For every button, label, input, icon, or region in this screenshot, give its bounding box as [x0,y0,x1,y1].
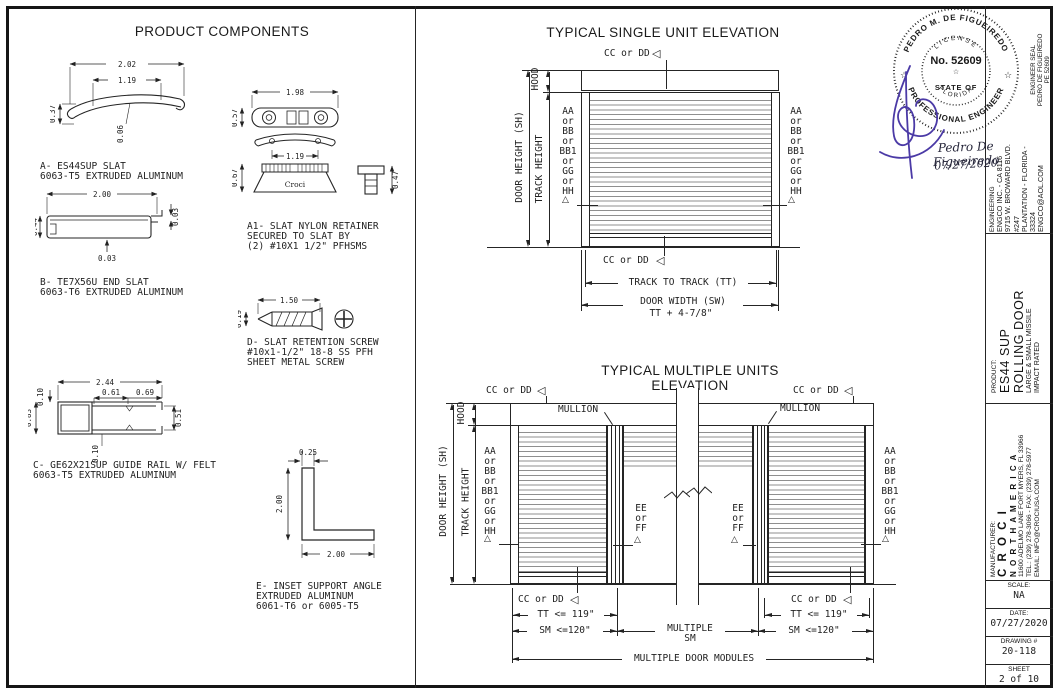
arrow-right-icon [862,613,869,617]
dim-line [529,72,530,245]
arrow-left-icon [765,613,772,617]
line [986,403,1053,404]
arrow-up-icon [450,403,454,410]
dim-label: 2.00 [327,550,346,559]
single-hood [581,70,779,91]
arrow-up-icon [472,425,476,432]
arrow-right-icon [751,629,758,633]
ee-ff-label-right: EE or FF [725,504,751,534]
line [986,580,1053,581]
seal-name-arc: PEDRO M. DE FIGUEIREDO [902,13,1010,54]
star-icon: ☆ [1004,71,1012,81]
brand-label: Croci [285,180,306,189]
dim-label: 0.37 [50,105,57,123]
line [611,425,612,584]
scale-value: NA [986,591,1052,601]
line [986,233,1053,234]
flag-icon: ◁ [652,47,660,60]
components-title: PRODUCT COMPONENTS [97,24,347,39]
arrow-left-icon [512,629,519,633]
single-door-height-label: DOOR HEIGHT (SH) [515,69,525,245]
extension-line [869,598,870,618]
dim-label: 0.69 [136,388,154,397]
extension-line [581,250,582,311]
dim-label: 1.50 [280,296,299,305]
flag-icon: ◁ [537,384,545,397]
leader-line [577,567,578,593]
arrow-left-icon [585,281,592,285]
cc-dd-label-bottom-right: CC or DD [791,595,843,605]
dim-label: 2.00 [275,494,284,513]
line [986,608,1053,609]
line [519,572,606,573]
component-a1-retainer-drawing: 1.98 0.57 1.19 Croci 0.67 0.47 [232,84,402,216]
single-right-guide [771,92,780,247]
line [590,237,771,238]
leader-line [664,236,665,256]
arrow-down-icon [546,240,550,247]
dim-line [453,405,454,582]
tt-max-label-left: TT <= 119" [528,610,604,620]
dim-label: 1.19 [118,76,136,85]
track-to-track-label: TRACK TO TRACK (TT) [618,278,748,288]
arrow-down-icon [526,240,530,247]
scale-label: SCALE: [986,582,1052,589]
line [619,425,620,584]
component-b-end-slat-drawing: 2.00 0.03 0.44 0.03 [35,182,195,267]
dim-label: 2.00 [93,190,112,199]
seal-license-arc: LICENSE [933,35,979,51]
component-a-caption: A- ES44SUP SLAT 6063-T5 EXTRUDED ALUMINU… [40,162,183,182]
single-track-height-label: TRACK HEIGHT [535,93,545,245]
cc-dd-label-bottom: CC or DD [603,256,655,266]
drawing-number-label: DRAWING # [986,638,1052,645]
dim-label: 0.83 [28,409,33,427]
arrow-up-icon [472,403,476,410]
tt-max-label-right: TT <= 119" [781,610,857,620]
manufacturer-contact: 11600 ADELMO LANE FORT MYERS, FL 33966 T… [1018,405,1041,577]
extension-line [873,588,874,663]
line [757,425,758,584]
dim-label: 0.06 [116,124,125,143]
dim-label: 0.10 [36,387,45,406]
multiple-door-height-label: DOOR HEIGHT (SH) [439,401,449,581]
single-curtain-slats [590,96,771,232]
sheet-value: 2 of 10 [986,675,1052,685]
multiple-side-labels-left: AA or BB or BB1 or GG or HH [476,447,504,537]
dim-label: 0.57 [232,109,239,127]
extension-line [776,250,777,287]
arrow-left-icon [758,629,765,633]
component-a1-caption: A1- SLAT NYLON RETAINER SECURED TO SLAT … [247,222,379,252]
line [615,425,616,584]
component-e-caption: E- INSET SUPPORT ANGLE EXTRUDED ALUMINUM… [256,582,382,612]
flag-icon: ◁ [570,593,578,606]
arrow-left-icon [617,629,624,633]
flag-icon: ◁ [844,384,852,397]
product-label: PRODUCT: [991,243,998,393]
arrow-left-icon [513,613,520,617]
extension-line [512,588,513,663]
dim-label: 2.02 [118,60,136,69]
leader-line [763,205,787,206]
leader-line [743,545,756,546]
door-width-formula: TT + 4-7/8" [628,309,734,319]
curtain-slats [519,428,606,572]
product-name: ES44 SUP [998,243,1012,393]
triangle-marker-icon: △ [484,534,491,544]
mullion-label-right: MULLION [780,404,834,414]
leader-line [577,205,598,206]
extension-line [778,250,779,311]
sheet-label: SHEET [986,666,1052,673]
arrow-down-icon [472,418,476,425]
triangle-marker-icon: △ [788,195,795,205]
component-c-guide-rail-drawing: 2.44 0.61 0.69 0.10 0.83 0.10 0.51 [28,372,233,472]
manufacturer-label: MANUFACTURER: [990,405,997,577]
product-type: ROLLING DOOR [1012,243,1026,393]
arrow-left-icon [512,657,519,661]
manufacturer-region: N O R T H A M E R I C A [1009,405,1018,577]
component-b-caption: B- TE7X56U END SLAT 6063-T6 EXTRUDED ALU… [40,278,183,298]
dim-label: 1.19 [286,152,304,161]
manufacturer-cell: MANUFACTURER: C R O C I N O R T H A M E … [990,405,1048,577]
leader-line [499,544,519,545]
dim-label: 0.44 [35,217,39,236]
cc-dd-label-top-right: CC or DD [793,386,845,396]
multiple-ground-line [450,584,896,585]
component-c-caption: C- GE62X21SUP GUIDE RAIL W/ FELT 6063-T5… [33,461,216,481]
line [986,636,1053,637]
module-right-guide [865,425,874,584]
drawing-number-value: 20-118 [986,647,1052,657]
arrow-right-icon [610,613,617,617]
single-side-labels-right: AA or BB or BB1 or GG or HH [782,107,810,197]
multiple-side-labels-right: AA or BB or BB1 or GG or HH [876,447,904,537]
svg-text:LICENSE: LICENSE [933,35,979,51]
cc-dd-label-top-left: CC or DD [486,386,538,396]
ee-ff-label-left: EE or FF [628,504,654,534]
arrow-right-icon [866,657,873,661]
multiple-track-height-label: TRACK HEIGHT [462,425,472,580]
panel-divider-line [415,6,416,688]
arrow-up-icon [546,93,550,100]
dim-label: 0.51 [174,409,183,427]
leader-line [850,567,851,593]
arrow-right-icon [771,303,778,307]
arrow-right-icon [866,629,873,633]
line [761,425,762,584]
dim-label: 0.67 [232,169,239,187]
multiple-hood-label: HOOD [457,400,467,426]
door-width-label: DOOR WIDTH (SW) [623,297,743,307]
dim-label: 0.25 [299,448,317,457]
component-a-slat-drawing: 2.02 1.19 0.37 0.06 [50,54,195,154]
triangle-marker-icon: △ [634,535,641,545]
cc-dd-label-bottom-left: CC or DD [518,595,570,605]
line [986,664,1053,665]
line [519,576,606,577]
component-d-caption: D- SLAT RETENTION SCREW #10x1-1/2" 18-8 … [247,338,379,368]
leader-line [861,544,881,545]
flag-icon: ◁ [656,254,664,267]
arrow-left-icon [581,303,588,307]
triangle-marker-icon: △ [882,534,889,544]
single-hood-label: HOOD [531,66,541,92]
sm-max-label-right: SM <=120" [776,626,852,636]
dim-label: 2.44 [96,378,115,387]
multiple-door-modules-label: MULTIPLE DOOR MODULES [622,654,766,664]
arrow-down-icon [450,577,454,584]
dim-label: 0.47 [391,171,400,189]
engineer-seal-cell: ENGINEER SEAL PEDRO DE FIGUEIREDO PE 526… [1030,15,1052,125]
svg-text:PEDRO M. DE FIGUEIREDO: PEDRO M. DE FIGUEIREDO [902,13,1010,54]
date-label: DATE: [986,610,1052,617]
sm-max-label-left: SM <=120" [527,626,603,636]
line [590,233,771,234]
line [764,425,765,584]
flag-icon: ◁ [843,593,851,606]
dim-label: 0.03 [98,254,116,263]
single-ground-line [487,247,800,248]
drawing-sheet: PRODUCT COMPONENTS 2.02 1.19 0.37 0.06 A… [0,0,1059,694]
multiple-sm-label: MULTIPLE SM [655,624,725,644]
manufacturer-name: C R O C I [997,405,1009,577]
curtain-slats [769,428,864,572]
leader-line [613,545,633,546]
break-mark-icon [686,485,712,497]
dim-label: 0.19 [238,310,243,328]
component-e-angle-drawing: 0.25 2.00 2.00 [252,446,392,576]
arrow-down-icon [472,577,476,584]
dim-label: 0.03 [171,208,180,226]
product-rating: LARGE & SMALL MISSILE IMPACT RATED [1026,243,1042,393]
triangle-marker-icon: △ [731,535,738,545]
arrow-down-icon [546,85,550,92]
arrow-right-icon [769,281,776,285]
triangle-marker-icon: △ [562,195,569,205]
single-side-labels-left: AA or BB or BB1 or GG or HH [554,107,582,197]
date-value: 07/27/2020 [986,619,1052,629]
dim-label: 0.61 [102,388,120,397]
arrow-up-icon [546,70,550,77]
dim-label: 1.98 [286,88,305,97]
single-elevation-title: TYPICAL SINGLE UNIT ELEVATION [538,25,788,40]
arrow-right-icon [610,629,617,633]
product-cell: PRODUCT: ES44 SUP ROLLING DOOR LARGE & S… [991,243,1047,393]
